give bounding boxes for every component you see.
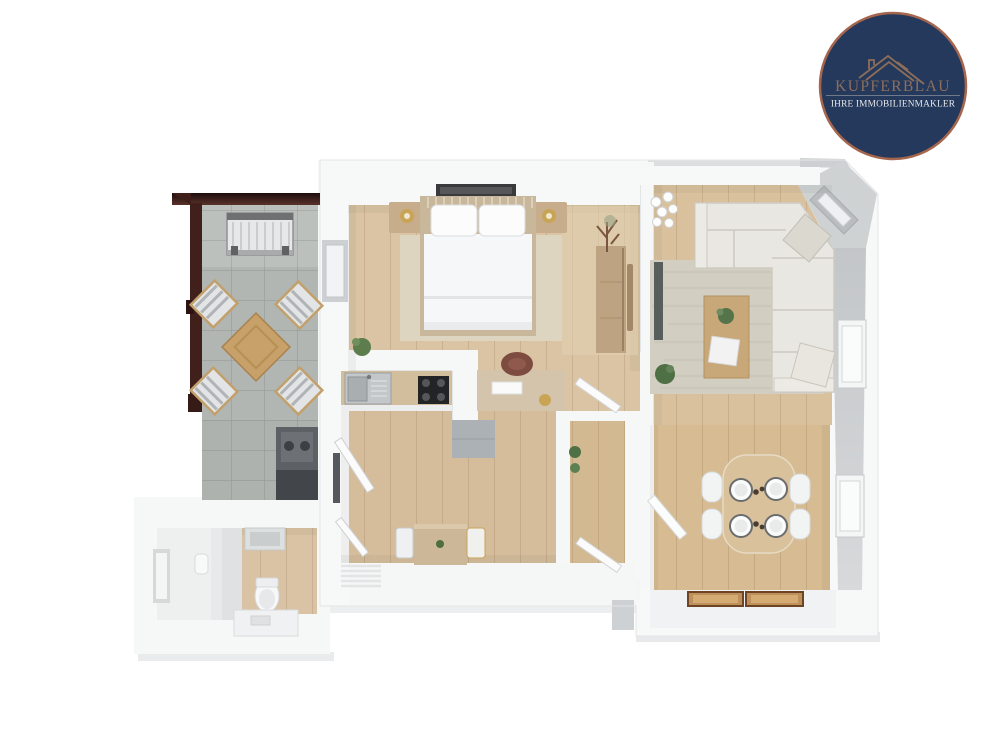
svg-text:KUPFERBLAU: KUPFERBLAU xyxy=(835,78,951,95)
svg-text:IHRE IMMOBILIENMAKLER: IHRE IMMOBILIENMAKLER xyxy=(831,100,956,110)
